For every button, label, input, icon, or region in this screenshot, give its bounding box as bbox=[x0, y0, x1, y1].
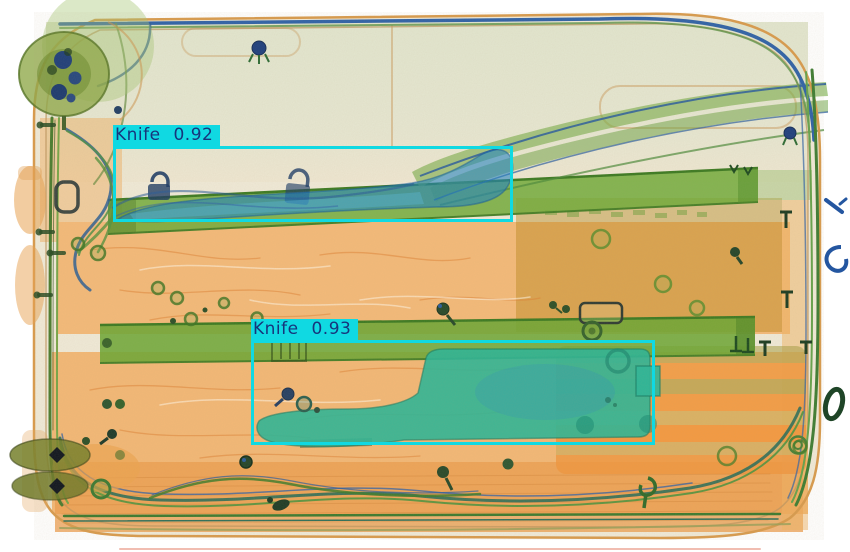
noise-overlay bbox=[34, 12, 824, 540]
xray-scene bbox=[0, 0, 850, 552]
xray-scan-view: Knife 0.92Knife 0.93 bbox=[0, 0, 850, 552]
